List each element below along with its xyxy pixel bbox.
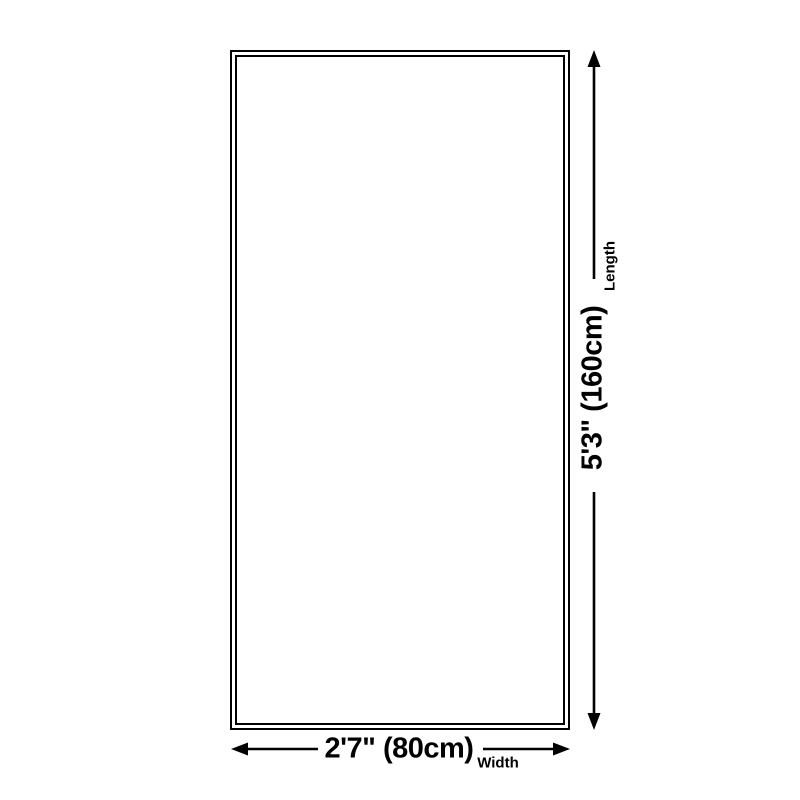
product-outline <box>230 50 570 730</box>
width-label: Width <box>477 756 519 771</box>
length-label: Length <box>603 241 618 291</box>
width-arrow-left-icon <box>231 743 248 756</box>
product-outline-inner-border <box>235 55 565 725</box>
length-value: 5'3" (160cm) <box>579 306 608 471</box>
width-arrow-right-icon <box>553 743 570 756</box>
length-arrow-up-icon <box>588 50 601 67</box>
dimension-diagram: 5'3" (160cm) Length 2'7" (80cm) Width <box>0 0 800 800</box>
width-value: 2'7" (80cm) <box>325 735 474 764</box>
length-arrow-down-icon <box>588 713 601 730</box>
